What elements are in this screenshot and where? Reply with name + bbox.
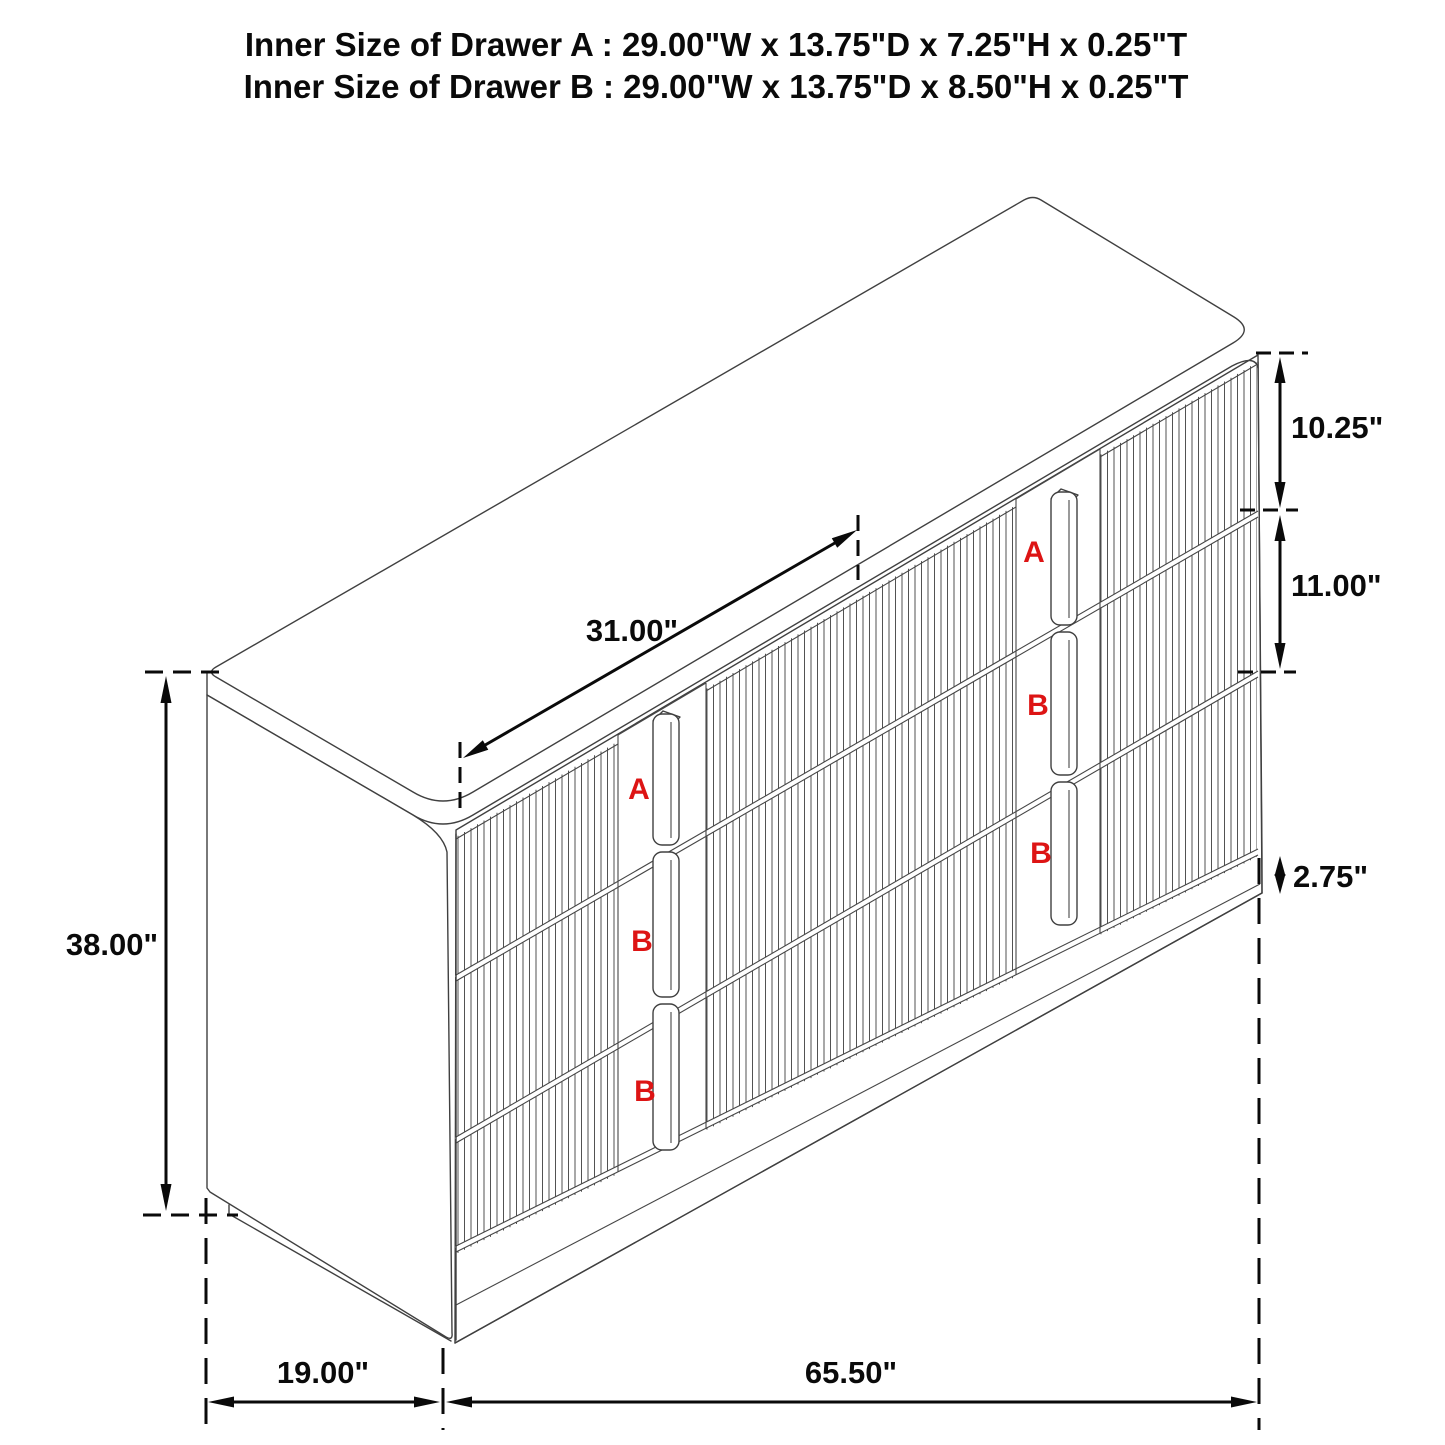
dim-depth: 19.00" <box>208 1355 440 1408</box>
dim-overall-width: 65.50" <box>446 1355 1257 1408</box>
drawer-handle <box>653 852 679 997</box>
diagram-canvas: Inner Size of Drawer A : 29.00"W x 13.75… <box>0 0 1445 1445</box>
drawer-label-b: B <box>1030 837 1052 870</box>
left-handles <box>653 711 680 1150</box>
drawer-label-a: A <box>628 773 650 806</box>
dim-label-6550: 65.50" <box>805 1355 897 1390</box>
dim-label-1900: 19.00" <box>277 1355 369 1390</box>
dim-top-drawer-height: 10.25" <box>1240 353 1383 510</box>
dim-label-275: 2.75" <box>1293 859 1368 894</box>
drawer-handle <box>1051 782 1077 925</box>
drawer-handle <box>1051 632 1077 775</box>
title-line-drawer-a: Inner Size of Drawer A : 29.00"W x 13.75… <box>245 26 1187 63</box>
title-block: Inner Size of Drawer A : 29.00"W x 13.75… <box>244 26 1189 105</box>
drawer-handle <box>653 714 679 845</box>
drawer-label-b: B <box>634 1075 656 1108</box>
title-line-drawer-b: Inner Size of Drawer B : 29.00"W x 13.75… <box>244 68 1189 105</box>
drawer-handle <box>653 1004 679 1150</box>
drawer-label-b: B <box>631 925 653 958</box>
dim-label-1100: 11.00" <box>1291 568 1382 603</box>
right-handles <box>1051 489 1078 925</box>
dim-label-3800: 38.00" <box>66 927 158 962</box>
drawer-label-a: A <box>1023 536 1045 569</box>
dim-label-1025: 10.25" <box>1291 410 1383 445</box>
drawer-label-b: B <box>1027 689 1049 722</box>
drawer-handle <box>1051 492 1077 625</box>
dim-base-height: 2.75" <box>1275 856 1369 894</box>
dresser-dimension-diagram: Inner Size of Drawer A : 29.00"W x 13.75… <box>0 0 1445 1445</box>
cabinet-drawing <box>207 198 1262 1344</box>
dim-label-31: 31.00" <box>586 613 678 648</box>
